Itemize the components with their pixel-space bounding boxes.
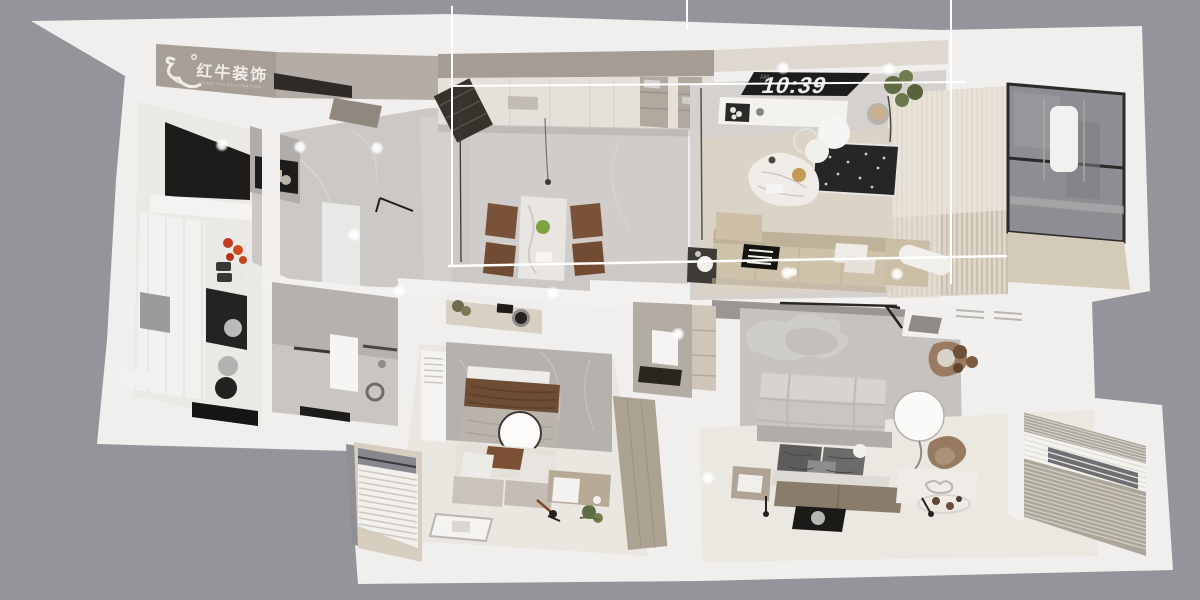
svg-text:10:39: 10:39: [759, 72, 830, 97]
svg-text:AM: AM: [760, 75, 769, 81]
